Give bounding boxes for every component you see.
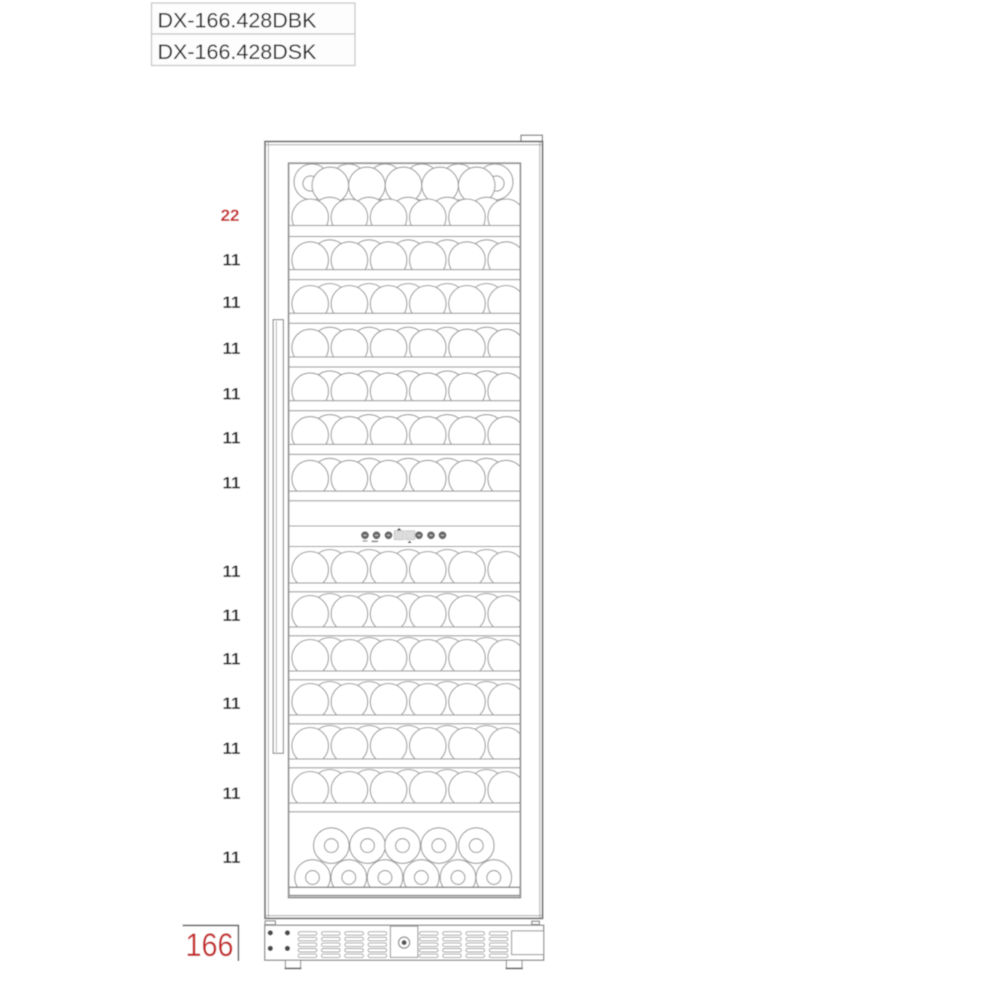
svg-text:166: 166 — [186, 927, 234, 963]
svg-text:11: 11 — [223, 848, 241, 867]
svg-text:DX-166.428DBK: DX-166.428DBK — [158, 9, 318, 33]
svg-text:22: 22 — [221, 206, 240, 225]
svg-text:11: 11 — [223, 293, 241, 312]
svg-text:DX-166.428DSK: DX-166.428DSK — [158, 40, 318, 64]
svg-text:11: 11 — [223, 339, 241, 358]
svg-text:11: 11 — [223, 694, 241, 713]
svg-text:11: 11 — [223, 251, 241, 270]
svg-text:11: 11 — [223, 384, 241, 403]
svg-text:11: 11 — [223, 606, 241, 625]
svg-text:11: 11 — [223, 473, 241, 492]
svg-text:11: 11 — [223, 429, 241, 448]
svg-text:11: 11 — [223, 562, 241, 581]
svg-text:11: 11 — [223, 649, 241, 668]
svg-text:11: 11 — [223, 784, 241, 803]
svg-text:11: 11 — [223, 739, 241, 758]
